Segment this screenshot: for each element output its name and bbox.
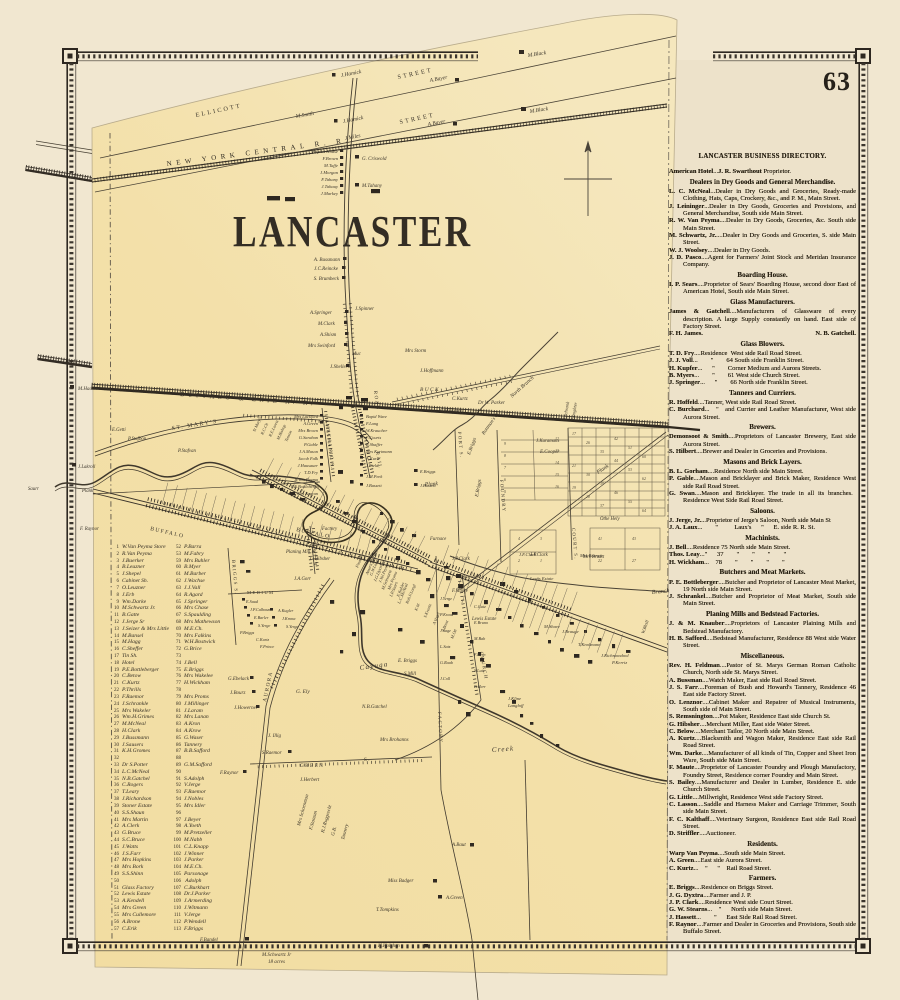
svg-text:J.Tahauy: J.Tahauy (321, 184, 339, 189)
svg-text:M.Tahany: M.Tahany (361, 184, 383, 189)
svg-text:6: 6 (504, 477, 506, 482)
svg-text:S.Yerge: S.Yerge (286, 624, 299, 629)
svg-text:E.Saud: E.Saud (245, 599, 259, 604)
svg-text:J.A.Gorr: J.A.Gorr (294, 577, 311, 582)
svg-text:41: 41 (598, 536, 602, 541)
svg-text:P.Gable: P.Gable (303, 442, 318, 447)
svg-text:Mrs Lackford: Mrs Lackford (293, 414, 319, 419)
svg-text:P.Stafvan: P.Stafvan (177, 449, 197, 454)
svg-text:J.P.Calhoun: J.P.Calhoun (250, 607, 270, 612)
svg-text:39: 39 (600, 481, 604, 486)
svg-text:E.Briggs: E.Briggs (419, 469, 436, 474)
svg-text:Mrs Swinford: Mrs Swinford (307, 344, 336, 349)
svg-text:S. Brumbeck: S. Brumbeck (314, 277, 340, 282)
svg-text:13: 13 (555, 448, 559, 453)
svg-text:Miss Badger: Miss Badger (387, 879, 413, 884)
svg-text:Dr W. Parker: Dr W. Parker (477, 401, 505, 406)
svg-text:46: 46 (614, 490, 618, 495)
svg-text:A.Green: A.Green (445, 896, 463, 901)
svg-text:14: 14 (555, 460, 559, 465)
svg-text:8: 8 (504, 453, 506, 458)
svg-text:J.C.Reincke: J.C.Reincke (314, 267, 339, 272)
svg-text:J.A.Mason: J.A.Mason (299, 449, 319, 454)
svg-text:Creek: Creek (492, 744, 515, 754)
svg-text:M.Taffe: M.Taffe (323, 163, 338, 168)
svg-text:26: 26 (586, 440, 590, 445)
svg-text:G.Hibsher: G.Hibsher (310, 557, 330, 562)
svg-text:Saurr: Saurr (28, 487, 39, 492)
svg-text:60: 60 (642, 454, 646, 459)
svg-text:J.Krona: J.Krona (282, 616, 295, 621)
svg-text:A.Kurtz: A.Kurtz (365, 456, 380, 461)
svg-text:F.Courts: F.Courts (365, 435, 381, 440)
svg-text:C.Kurtz: C.Kurtz (452, 397, 468, 402)
svg-text:G.Hammel: G.Hammel (440, 409, 462, 414)
svg-text:N.B.Gatchel: N.B.Gatchel (361, 705, 387, 710)
svg-text:E. Briggs: E. Briggs (397, 659, 417, 664)
svg-text:J.Lakroll: J.Lakroll (78, 465, 96, 470)
svg-text:W.Kraucher: W.Kraucher (366, 428, 387, 433)
svg-text:J.Morgan: J.Morgan (320, 170, 339, 175)
svg-text:44: 44 (614, 458, 618, 463)
svg-text:Jr.Van Peyma: Jr.Van Peyma (294, 477, 319, 482)
svg-text:64: 64 (642, 508, 646, 513)
svg-text:4: 4 (518, 536, 520, 541)
svg-text:42: 42 (614, 436, 618, 441)
svg-text:A. Bussmann: A. Bussmann (313, 258, 341, 263)
svg-text:J.Herbert: J.Herbert (300, 778, 320, 783)
svg-text:G. Criswold: G. Criswold (362, 157, 387, 162)
svg-text:Baptist House: Baptist House (312, 149, 338, 154)
svg-text:GREEN: GREEN (300, 763, 324, 769)
svg-text:Lewis Estate: Lewis Estate (529, 576, 553, 581)
svg-text:43: 43 (632, 536, 636, 541)
svg-text:Factory: Factory (321, 527, 338, 532)
svg-text:Othe Hely: Othe Hely (600, 517, 620, 522)
svg-text:F. Raynor: F. Raynor (79, 527, 99, 532)
svg-text:Mrs Sauran: Mrs Sauran (296, 491, 319, 496)
svg-text:35: 35 (600, 449, 604, 454)
svg-text:J. Illig: J. Illig (268, 734, 282, 739)
svg-text:T.Tompkins: T.Tompkins (376, 908, 399, 913)
svg-text:53: 53 (628, 467, 632, 472)
svg-text:A.Springer: A.Springer (309, 311, 332, 316)
svg-text:A.Green: A.Green (302, 421, 318, 426)
svg-text:G. Ely: G. Ely (296, 689, 310, 695)
svg-text:A.Shism: A.Shism (319, 333, 337, 338)
svg-text:Mrs Brown: Mrs Brown (297, 428, 319, 433)
svg-text:28: 28 (586, 494, 590, 499)
svg-text:Plank: Plank (81, 489, 94, 494)
svg-text:C.Kurtz: C.Kurtz (256, 637, 270, 642)
svg-text:T.D.Fry: T.D.Fry (304, 470, 318, 475)
svg-text:12: 12 (555, 436, 559, 441)
svg-text:L.Satz: L.Satz (439, 644, 451, 649)
svg-text:A.Kugler: A.Kugler (277, 608, 294, 613)
svg-text:J.Bassett: J.Bassett (420, 483, 437, 488)
svg-text:G.Raab: G.Raab (440, 660, 453, 665)
svg-text:9: 9 (504, 441, 506, 446)
svg-text:16: 16 (555, 484, 559, 489)
svg-text:F.Brown: F.Brown (322, 156, 339, 161)
svg-text:J.Hoffmann: J.Hoffmann (420, 369, 444, 374)
svg-text:Bapid Wave: Bapid Wave (366, 414, 387, 419)
svg-text:Mrs Brohanns: Mrs Brohanns (379, 738, 409, 743)
svg-text:5: 5 (504, 489, 506, 494)
svg-text:J.Coll: J.Coll (440, 676, 451, 681)
svg-text:55: 55 (628, 499, 632, 504)
svg-text:M.Clark: M.Clark (317, 322, 336, 327)
svg-text:P.Kerriz: P.Kerriz (611, 660, 627, 665)
svg-text:J.M.Peek: J.M.Peek (366, 474, 383, 479)
svg-text:J.Markey: J.Markey (321, 191, 339, 196)
svg-text:M.Haden: M.Haden (77, 387, 97, 392)
svg-text:30: 30 (586, 472, 590, 477)
svg-text:Jacob Falk: Jacob Falk (298, 456, 319, 461)
svg-text:M.Shave: M.Shave (543, 624, 560, 629)
svg-text:J.Yerge: J.Yerge (440, 596, 452, 601)
svg-text:1: 1 (540, 558, 542, 563)
svg-text:18 acres: 18 acres (268, 960, 285, 965)
svg-text:F.Kern: F.Kern (473, 652, 485, 657)
svg-text:Bostwick: Bostwick (462, 575, 480, 580)
svg-text:Furnace: Furnace (429, 537, 447, 542)
svg-text:F.Prince: F.Prince (259, 644, 274, 649)
svg-text:S.Lutz: S.Lutz (474, 668, 485, 673)
svg-text:J.Sheller: J.Sheller (330, 365, 348, 370)
svg-text:22: 22 (598, 558, 602, 563)
svg-text:M.Schwartz Jr: M.Schwartz Jr (261, 953, 291, 958)
svg-text:G.Saraban: G.Saraban (299, 435, 319, 440)
svg-text:P.Kraus: P.Kraus (439, 612, 454, 617)
svg-text:F.Bandel: F.Bandel (199, 938, 218, 943)
svg-text:B.Herr: B.Herr (474, 684, 486, 689)
svg-text:Mrs Branett: Mrs Branett (579, 553, 603, 558)
svg-text:R.Shaffer: R.Shaffer (365, 442, 383, 447)
svg-text:2: 2 (518, 558, 520, 563)
svg-text:E.Barler: E.Barler (253, 615, 269, 620)
svg-text:15: 15 (555, 472, 559, 477)
svg-text:3: 3 (540, 536, 542, 541)
svg-text:E.Bruno: E.Bruno (473, 620, 488, 625)
svg-text:J.Hausauer: J.Hausauer (298, 463, 319, 468)
svg-text:J.F.Clark: J.F.Clark (519, 552, 537, 557)
svg-text:P.Stafbon: P.Stafbon (127, 437, 147, 442)
svg-text:51: 51 (628, 445, 632, 450)
svg-text:H.Holchen: H.Holchen (377, 944, 400, 949)
svg-text:F.Tahany: F.Tahany (320, 177, 339, 182)
svg-text:S.Yerge: S.Yerge (258, 623, 271, 628)
svg-text:E.Getti: E.Getti (111, 428, 126, 433)
svg-text:Mrs Storm: Mrs Storm (404, 349, 427, 354)
svg-text:19: 19 (572, 485, 576, 490)
svg-text:J.Spinner: J.Spinner (355, 307, 374, 312)
svg-text:S.Mill: S.Mill (404, 672, 417, 677)
svg-text:J.Bassett: J.Bassett (366, 483, 383, 488)
svg-text:Muc: Muc (351, 352, 362, 357)
svg-text:62: 62 (642, 476, 646, 481)
svg-text:S.Raemor: S.Raemor (262, 751, 282, 756)
svg-text:F.Lang: F.Lang (365, 421, 379, 426)
svg-text:A.Baut: A.Baut (451, 843, 466, 848)
svg-text:M.Bab: M.Bab (473, 636, 485, 641)
svg-text:21: 21 (572, 463, 576, 468)
